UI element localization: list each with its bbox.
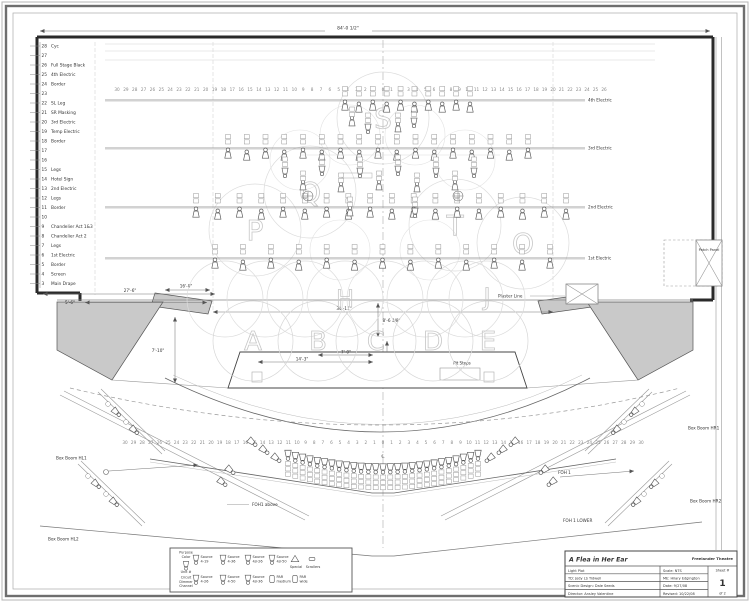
circuit-box: [194, 199, 199, 203]
chandelier-symbol: [303, 191, 313, 201]
drawing-text: C: [367, 327, 385, 357]
drawing-text: 20: [42, 120, 48, 126]
drawing-text: 4-26: [201, 580, 209, 584]
circuit-box: [259, 199, 264, 203]
circuit-box: [446, 469, 451, 473]
drawing-text: 7: [42, 243, 45, 249]
circuit-box: [415, 178, 420, 182]
circuit-box: [398, 87, 403, 91]
drawing-text: SR Masking: [51, 110, 76, 116]
circuit-box: [286, 472, 291, 476]
drawing-text: Legs: [51, 243, 62, 249]
circuit-box: [472, 157, 477, 161]
circuit-box: [344, 478, 349, 482]
circuit-box: [432, 140, 437, 144]
drawing-text: 4-36: [228, 560, 236, 564]
circuit-box: [351, 474, 356, 478]
circuit-box: [240, 250, 245, 254]
drawing-text: 14: [256, 87, 262, 92]
drawing-text: 26: [157, 440, 163, 445]
drawing-text: Source: [277, 555, 289, 559]
circuit-box: [439, 475, 444, 479]
circuit-box: [358, 157, 363, 161]
circuit-box: [307, 472, 312, 476]
circuit-box: [464, 250, 469, 254]
revised-note: Revised: 10/22/08: [663, 592, 695, 596]
circuit-box: [454, 92, 459, 96]
circuit-box: [440, 92, 445, 96]
circuit-box: [380, 245, 385, 249]
drawing-text: 18: [533, 87, 539, 92]
foh1-above-label: FOH1 above: [252, 502, 278, 507]
circuit-box: [293, 469, 298, 473]
circuit-box: [432, 482, 437, 486]
drawing-text: Border: [51, 82, 66, 88]
circuit-box: [436, 245, 441, 249]
circuit-box: [454, 87, 459, 91]
circuit-box: [492, 245, 497, 249]
drawing-text: Box Boom HL1: [56, 456, 87, 461]
drawing-text: 24: [584, 87, 590, 92]
drawing-text: Chandelier Act 2: [51, 234, 87, 240]
drawing-text: 1: [390, 87, 393, 92]
circuit-box: [446, 474, 451, 478]
circuit-box: [356, 92, 361, 96]
drawing-text: 1st Electric: [588, 256, 612, 261]
drawing-text: 12: [482, 87, 488, 92]
par-symbol: [293, 575, 298, 582]
scale-note: Scale: NTS: [663, 569, 682, 573]
drawing-text: 6: [433, 440, 436, 445]
circuit-box: [350, 112, 355, 116]
circuit-box: [282, 140, 287, 144]
pit-platform: [228, 352, 527, 388]
unit-number-circle: [86, 474, 91, 479]
drawing-text: 26: [150, 87, 156, 92]
drawing-text: Temp Electric: [50, 129, 80, 135]
drawing-text: 19: [217, 440, 223, 445]
circuit-box: [359, 480, 364, 484]
drawing-text: 27: [141, 87, 147, 92]
drawing-text: 30: [638, 440, 644, 445]
drawing-text: Source: [201, 575, 213, 579]
td-credit: TD: Jody LS Tidwell: [567, 577, 601, 581]
drawing-text: 10: [292, 87, 298, 92]
circuit-box: [322, 480, 327, 484]
circuit-box: [296, 250, 301, 254]
drawing-text: 4: [347, 440, 350, 445]
drawing-text: 23: [183, 440, 189, 445]
drawing-text: 24: [587, 440, 593, 445]
drawing-text: 6: [42, 253, 45, 259]
circuit-box: [395, 485, 400, 489]
drawing-text: 22: [567, 87, 573, 92]
drawing-text: 24: [168, 87, 174, 92]
drawing-text: 7: [321, 440, 324, 445]
unit-number-circle: [642, 492, 647, 497]
drawing-text: 2nd Electric: [51, 186, 77, 192]
circuit-box: [226, 135, 231, 139]
drawing-text: 29: [131, 440, 137, 445]
drawing-text: Scrollers: [306, 565, 321, 569]
circuit-box: [410, 474, 415, 478]
circuit-box: [329, 471, 334, 475]
circuit-box: [507, 135, 512, 139]
drawing-text: 13: [491, 87, 497, 92]
circuit-box: [282, 135, 287, 139]
drawing-text: 3rd Electric: [588, 146, 613, 151]
drawing-text: 19: [542, 87, 548, 92]
circuit-box: [413, 135, 418, 139]
drawing-text: 4: [42, 272, 45, 278]
circuit-box: [498, 199, 503, 203]
drawing-text: Screen: [51, 272, 66, 278]
dim-pit-width: 14'-3": [296, 357, 309, 362]
circuit-box: [338, 135, 343, 139]
circuit-box: [388, 475, 393, 479]
circuit-box: [356, 87, 361, 91]
drawing-text: 5: [425, 440, 428, 445]
patch-panel-label: Patch Panel: [699, 248, 720, 252]
drawing-text: 12: [274, 87, 280, 92]
drawing-text: 4th Electric: [588, 98, 613, 103]
circuit-box: [454, 472, 459, 476]
circuit-box: [424, 477, 429, 481]
circuit-box: [286, 467, 291, 471]
show-title: A Flea in Her Ear: [568, 557, 628, 564]
circuit-box: [476, 467, 481, 471]
circuit-box: [329, 476, 334, 480]
circuit-box: [488, 140, 493, 144]
circuit-box: [432, 471, 437, 475]
drawing-text: 20: [552, 440, 558, 445]
circuit-box: [389, 199, 394, 203]
drawing-text: 8: [313, 440, 316, 445]
circuit-box: [388, 480, 393, 484]
circuit-box: [337, 472, 342, 476]
circuit-box: [213, 250, 218, 254]
drawing-text: 28: [621, 440, 627, 445]
circuit-box: [366, 113, 371, 117]
drawing-text: 4-50: [228, 580, 236, 584]
drawing-text: Source: [253, 555, 265, 559]
drawing-text: Box Boom HR2: [690, 499, 722, 504]
drawing-text: Unit #: [181, 570, 192, 574]
drawing-text: 21: [42, 110, 48, 116]
drawing-text: 9: [304, 440, 307, 445]
drawing-text: 27: [148, 440, 154, 445]
circuit-box: [301, 140, 306, 144]
drawing-text: 6: [328, 87, 331, 92]
drawing-text: 21: [194, 87, 200, 92]
circuit-box: [283, 162, 288, 166]
circuit-box: [439, 480, 444, 484]
drawing-text: Hotel Sign: [51, 177, 73, 183]
circuit-box: [395, 475, 400, 479]
circuit-box: [424, 483, 429, 487]
drawing-text: wide: [300, 580, 308, 584]
circuit-box: [432, 135, 437, 139]
dim-pit-half: 7'-0": [341, 350, 351, 355]
circuit-box: [339, 178, 344, 182]
drawing-text: 28: [140, 440, 146, 445]
circuit-box: [453, 176, 458, 180]
drawing-text: 4th Electric: [51, 72, 76, 78]
circuit-box: [381, 475, 386, 479]
drawing-text: Cyc: [51, 44, 60, 50]
drawing-text: Border: [51, 262, 66, 268]
circuit-box: [426, 87, 431, 91]
circuit-box: [352, 245, 357, 249]
circuit-box: [322, 470, 327, 474]
circuit-box: [366, 475, 371, 479]
drawing-text: 27: [42, 53, 48, 59]
drawing-text: 6: [433, 87, 436, 92]
drawing-text: Box Boom HR1: [688, 426, 720, 431]
drawing-text: 15: [508, 87, 514, 92]
circuit-box: [244, 140, 249, 144]
drawing-text: 16: [516, 87, 522, 92]
circuit-box: [240, 245, 245, 249]
circuit-box: [286, 461, 291, 465]
circuit-box: [412, 87, 417, 91]
circuit-box: [402, 474, 407, 478]
drawing-text: 15: [42, 167, 48, 173]
drawing-text: SL Leg: [51, 101, 65, 107]
circuit-box: [259, 194, 264, 198]
foh1-lower-label: FOH 1 LOWER: [563, 518, 592, 523]
me-credit: ME: Hilary Edgington: [663, 577, 700, 581]
drawing-text: 26: [601, 87, 607, 92]
drawing-text: 21: [561, 440, 567, 445]
circuit-box: [348, 202, 353, 206]
drawing-text: S: [374, 102, 392, 135]
circuit-box: [417, 484, 422, 488]
circuit-box: [315, 469, 320, 473]
drawing-text: 25: [159, 87, 165, 92]
circuit-box: [300, 476, 305, 480]
circuit-box: [324, 199, 329, 203]
drawing-text: 4jr-36: [253, 580, 263, 584]
drawing-text: 4-19: [201, 560, 209, 564]
drawing-text: 17: [525, 87, 531, 92]
circuit-box: [476, 472, 481, 476]
circuit-box: [373, 480, 378, 484]
circuit-box: [394, 135, 399, 139]
overall-width-dim: 84'-0 1/2": [337, 26, 359, 32]
circuit-box: [542, 194, 547, 198]
circuit-box: [451, 135, 456, 139]
drawing-text: 9: [42, 224, 45, 230]
circuit-box: [454, 467, 459, 471]
circuit-box: [426, 92, 431, 96]
drawing-text: Main Drape: [51, 281, 76, 287]
circuit-box: [283, 157, 288, 161]
circuit-box: [324, 194, 329, 198]
circuit-box: [376, 135, 381, 139]
drawing-text: Box Boom HL2: [48, 537, 79, 542]
circuit-box: [468, 92, 473, 96]
circuit-box: [358, 162, 363, 166]
circuit-box: [439, 470, 444, 474]
drawing-text: 23: [176, 87, 182, 92]
drawing-text: 27: [613, 440, 619, 445]
circuit-box: [381, 480, 386, 484]
circuit-box: [343, 92, 348, 96]
drawing-text: 22: [191, 440, 197, 445]
circuit-box: [468, 469, 473, 473]
drawing-text: 13: [42, 186, 48, 192]
dim-sr-inner: 5'-6": [65, 300, 75, 305]
drawing-text: 3: [42, 281, 45, 287]
circuit-box: [194, 194, 199, 198]
drawing-text: 4jr-50: [277, 560, 287, 564]
unit-number-circle: [106, 402, 111, 407]
date-note: Date: 9/27/08: [663, 584, 687, 588]
drawing-text: 19: [212, 87, 218, 92]
light-plot-drawing: 84'-0 1/2" 27'-6" 5'-6" 16'-0" 7'-10" 34…: [0, 0, 750, 602]
drawing-text: 18: [42, 139, 48, 145]
circuit-box: [338, 140, 343, 144]
circuit-box: [368, 199, 373, 203]
circuit-box: [436, 250, 441, 254]
legend: PurposeColorUnit #CircuitDimmerChannelSo…: [170, 548, 352, 592]
par-symbol: [270, 575, 275, 582]
drawing-text: 18: [535, 440, 541, 445]
circuit-box: [526, 140, 531, 144]
drawing-text: Source: [228, 555, 240, 559]
drawing-text: medium: [277, 580, 292, 584]
drawing-text: 7: [442, 440, 445, 445]
circuit-box: [373, 486, 378, 490]
drawing-text: 11: [42, 205, 48, 211]
foh1-label: FOH 1: [558, 470, 571, 475]
circuit-box: [244, 135, 249, 139]
drawing-text: 22: [185, 87, 191, 92]
circuit-box: [315, 479, 320, 483]
circuit-box: [394, 140, 399, 144]
circuit-box: [461, 471, 466, 475]
drawing-text: Channel: [179, 584, 193, 588]
light-plot-sheet: 84'-0 1/2" 27'-6" 5'-6" 16'-0" 7'-10" 34…: [0, 0, 750, 602]
drawing-text: 18: [226, 440, 232, 445]
drawing-text: 30: [114, 87, 120, 92]
circuit-box: [412, 92, 417, 96]
circuit-box: [319, 135, 324, 139]
unit-number-circle: [124, 420, 129, 425]
circuit-box: [350, 107, 355, 111]
circuit-box: [520, 194, 525, 198]
drawing-text: Border: [51, 205, 66, 211]
drawing-text: 28: [132, 87, 138, 92]
drawing-text: 21: [200, 440, 206, 445]
drawing-text: J: [481, 283, 490, 311]
circuit-box: [468, 474, 473, 478]
circuit-box: [307, 467, 312, 471]
circuit-box: [564, 194, 569, 198]
drawing-text: PAR: [277, 575, 284, 579]
drawing-text: 10: [466, 440, 472, 445]
drawing-text: 17: [230, 87, 236, 92]
drawing-text: 20: [208, 440, 214, 445]
drawing-text: 2: [364, 440, 367, 445]
circuit-box: [226, 140, 231, 144]
unit-number-circle: [640, 402, 645, 407]
circuit-box: [413, 197, 418, 201]
circuit-box: [344, 473, 349, 477]
drawing-text: Border: [51, 139, 66, 145]
circuit-box: [440, 87, 445, 91]
drawing-text: Source: [228, 575, 240, 579]
circuit-box: [351, 484, 356, 488]
drawing-text: 20: [203, 87, 209, 92]
drawing-text: 30: [122, 440, 128, 445]
drawing-text: 9: [459, 440, 462, 445]
drawing-text: 9: [302, 87, 305, 92]
circuit-box: [359, 474, 364, 478]
title-block: A Flea in Her Ear Freelander Theatre Lig…: [565, 551, 737, 597]
circuit-box: [469, 135, 474, 139]
drawing-text: 4: [416, 440, 419, 445]
drawing-text: 6: [330, 440, 333, 445]
drawing-text: 17: [234, 440, 240, 445]
drawing-text: 8: [311, 87, 314, 92]
circuit-box: [520, 199, 525, 203]
circuit-box: [370, 92, 375, 96]
drawing-text: 25: [42, 72, 48, 78]
drawing-text: 14: [260, 440, 266, 445]
circuit-box: [263, 135, 268, 139]
drawing-text: 3rd Electric: [51, 120, 76, 126]
drawing-text: 15: [247, 87, 253, 92]
drawing-text: 7: [320, 87, 323, 92]
circuit-box: [366, 480, 371, 484]
circuit-box: [417, 473, 422, 477]
drawing-text: 3: [407, 440, 410, 445]
circuit-box: [564, 199, 569, 203]
circuit-box: [461, 465, 466, 469]
circuit-box: [300, 465, 305, 469]
circuit-box: [344, 484, 349, 488]
circuit-box: [410, 479, 415, 483]
circuit-box: [408, 245, 413, 249]
drawing-text: 5: [42, 262, 45, 268]
circuit-box: [451, 140, 456, 144]
circuit-box: [468, 87, 473, 91]
drawing-text: 16: [42, 158, 48, 164]
drawing-text: 26: [42, 63, 48, 69]
circuit-box: [408, 250, 413, 254]
circuit-box: [395, 480, 400, 484]
director-credit: Director: Ansley Valentine: [568, 592, 613, 596]
circuit-box: [237, 194, 242, 198]
drawing-text: 11: [475, 440, 481, 445]
circuit-box: [468, 463, 473, 467]
drawing-text: 19: [42, 129, 48, 135]
circuit-box: [472, 162, 477, 166]
drawing-text: 3: [407, 87, 410, 92]
drawing-text: 3: [356, 440, 359, 445]
circuit-box: [476, 461, 481, 465]
drawing-text: 11: [474, 87, 480, 92]
circuit-box: [402, 485, 407, 489]
circuit-box: [388, 486, 393, 490]
drawing-text: 8: [42, 234, 45, 240]
circuit-box: [389, 194, 394, 198]
drawing-text: PAR: [300, 575, 307, 579]
circuit-box: [343, 87, 348, 91]
drawing-text: Chandelier Act 1&3: [51, 224, 93, 230]
